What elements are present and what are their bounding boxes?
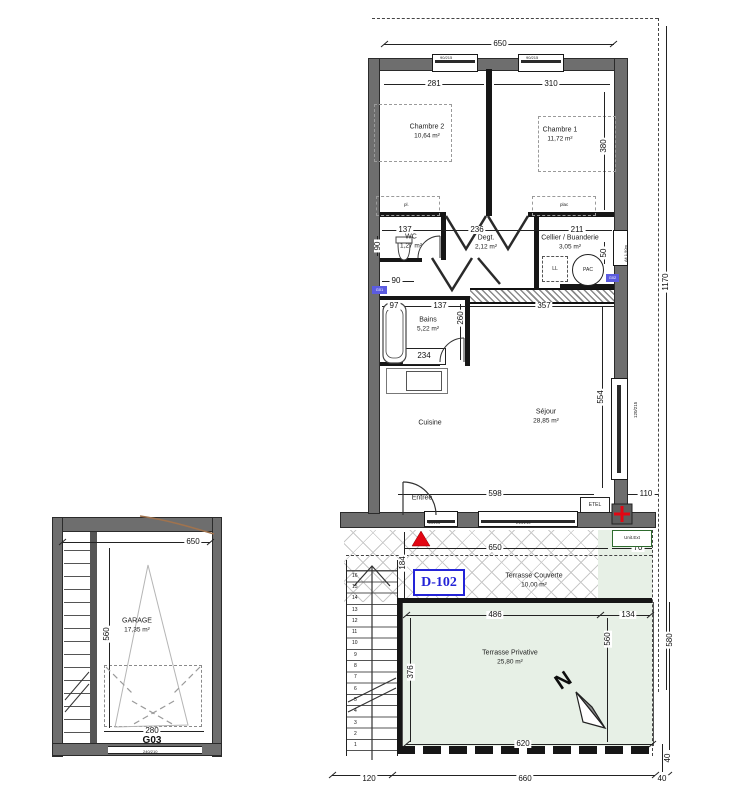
room-sejour: Séjour 28,85 m² xyxy=(533,409,559,426)
room-name: Cellier / Buanderie xyxy=(541,235,599,244)
room-wc: WC 1,27 m² xyxy=(400,234,422,251)
dim-label: 110 xyxy=(638,490,655,498)
dim-label: 357 xyxy=(535,302,552,310)
dim-label: 620 xyxy=(514,740,531,748)
dim-label: 120 xyxy=(360,775,377,783)
room-area: 11,72 m² xyxy=(543,135,578,143)
room-name: Entrée xyxy=(412,495,433,504)
dim-label: 660 xyxy=(516,775,533,783)
dim-label: 281 xyxy=(425,80,442,88)
etel-label: ETEL xyxy=(589,503,602,508)
wall-terrace-separator xyxy=(400,598,652,603)
window-size-label: 210/215 xyxy=(516,521,530,525)
dim-label: 97 xyxy=(388,302,401,310)
etel-box: ETEL xyxy=(580,497,610,513)
dim-label: 280 xyxy=(143,727,160,735)
boundary-top xyxy=(372,18,658,19)
washing-machine-box: LL xyxy=(542,256,568,282)
room-bains: Bains 5,22 m² xyxy=(417,317,439,334)
dim-label: 236 xyxy=(468,226,485,234)
room-name: WC xyxy=(400,234,422,243)
room-name: Terrasse Couverte xyxy=(505,573,562,582)
room-name: Terrasse Privative xyxy=(482,650,538,659)
door-tag-g01: G01 xyxy=(372,286,387,294)
window-size-label: 90/215 xyxy=(428,521,440,525)
dim-label: 40 xyxy=(656,775,669,783)
boundary-terrace-right xyxy=(652,530,653,756)
heat-pump-label: PAC xyxy=(583,268,593,273)
washing-machine-label: LL xyxy=(552,267,558,272)
floor-plan: 16 15 14 13 12 11 10 9 8 7 6 5 4 3 2 1 6… xyxy=(0,0,750,800)
dim-line xyxy=(404,548,608,549)
dim-line xyxy=(669,602,670,750)
dim-label: 310 xyxy=(542,80,559,88)
stair-step-number: 13 xyxy=(352,608,358,613)
stair-step-number: 10 xyxy=(352,641,358,646)
stair-step-number: 14 xyxy=(352,596,358,601)
stair-step-number: 2 xyxy=(354,732,357,737)
room-name: Chambre 1 xyxy=(543,127,578,136)
room-cuisine: Cuisine xyxy=(418,420,441,429)
room-area: 2,12 m² xyxy=(475,243,497,251)
room-name: Bains xyxy=(417,317,439,326)
wall-terrace-left xyxy=(397,598,402,750)
wall-wc-bottom xyxy=(380,258,422,262)
window-chambre1 xyxy=(518,54,564,72)
dim-label: 134 xyxy=(619,611,636,619)
stair-step-number: 11 xyxy=(352,630,357,635)
room-cellier: Cellier / Buanderie 3,05 m² xyxy=(541,235,599,252)
room-name: Degt. xyxy=(475,235,497,244)
wall-chambre-divider xyxy=(486,69,492,216)
room-name: Chambre 2 xyxy=(410,124,445,133)
exterior-unit-label: Unit.Ext xyxy=(624,536,640,541)
garage-wall-left xyxy=(52,517,63,757)
garage-parking-space xyxy=(104,665,202,727)
room-name: Cuisine xyxy=(418,420,441,429)
dim-label: 90 xyxy=(390,277,403,285)
room-area: 10,64 m² xyxy=(410,132,445,140)
window-chambre2 xyxy=(432,54,478,72)
wall-bains-top xyxy=(380,296,470,300)
unit-id-label: D-102 xyxy=(421,575,457,591)
unit-id-box: D-102 xyxy=(413,569,465,596)
door-chevron-degagement xyxy=(432,258,500,290)
dim-label: 376 xyxy=(407,663,415,680)
kitchen-sink xyxy=(406,371,442,391)
room-area: 10,00 m² xyxy=(505,581,562,589)
dim-label: 650 xyxy=(184,538,201,546)
wall-cellier-left xyxy=(534,214,539,290)
room-area: 28,85 m² xyxy=(533,417,559,425)
room-area: 1,27 m² xyxy=(400,242,422,250)
dim-label: 554 xyxy=(597,388,605,405)
dim-label: 234 xyxy=(415,352,432,360)
window-size-label: 90/215 xyxy=(526,56,538,60)
dim-label: 137 xyxy=(431,302,448,310)
dim-label: 560 xyxy=(604,630,612,647)
dim-label: 380 xyxy=(600,137,608,154)
dim-label: 40 xyxy=(664,752,672,765)
wall-wc-right xyxy=(441,214,446,260)
door-tag-label: G02 xyxy=(609,276,617,280)
placard-label: pl. xyxy=(404,203,409,208)
dim-label: 650 xyxy=(486,544,503,552)
dim-label: 90 xyxy=(374,240,382,253)
terrasse-privative-area xyxy=(402,602,654,750)
terrace-axis-dashed xyxy=(346,555,652,556)
dim-label: 184 xyxy=(399,554,407,571)
door-tag-g02: G02 xyxy=(606,274,619,282)
stair-step-number: 1 xyxy=(354,743,357,748)
room-area: 17,35 m² xyxy=(122,626,152,634)
stair-step-number: 3 xyxy=(354,721,357,726)
room-name: GARAGE xyxy=(122,618,152,627)
garage-staircase xyxy=(64,538,90,738)
room-area: 25,80 m² xyxy=(482,658,538,666)
dim-label: 211 xyxy=(569,226,586,234)
stair-step-number: 4 xyxy=(354,709,357,714)
dim-label: 1170 xyxy=(662,271,670,292)
placard-label: plac xyxy=(560,203,568,208)
garage-wall-right xyxy=(212,517,222,757)
room-degt: Degt. 2,12 m² xyxy=(475,235,497,252)
dim-line xyxy=(332,775,668,776)
window-altitude-label: Alt 1.90m xyxy=(624,245,628,262)
wall-bains-right xyxy=(465,298,470,366)
dim-label: 486 xyxy=(486,611,503,619)
room-garage: GARAGE 17,35 m² xyxy=(122,618,152,635)
stair-step-number: 15 xyxy=(352,585,358,590)
garage-stair-divider xyxy=(90,532,97,743)
boundary-right xyxy=(658,18,659,692)
stair-step-number: 6 xyxy=(354,687,357,692)
dim-label: 260 xyxy=(457,309,465,326)
room-terrasse-privative: Terrasse Privative 25,80 m² xyxy=(482,650,538,667)
stair-step-number: 16 xyxy=(352,574,358,579)
room-name: Séjour xyxy=(533,409,559,418)
room-chambre2: Chambre 2 10,64 m² xyxy=(410,124,445,141)
dim-label: 580 xyxy=(666,631,674,648)
stair-step-number: 9 xyxy=(354,653,357,658)
stair-step-number: 8 xyxy=(354,664,357,669)
dim-label: 650 xyxy=(491,40,508,48)
room-entree: Entrée xyxy=(412,495,433,504)
door-tag-label: G01 xyxy=(376,288,384,292)
garage-door-size-label: 240/210 xyxy=(143,750,157,754)
dim-label: 598 xyxy=(486,490,503,498)
stair-step-number: 12 xyxy=(352,619,358,624)
exterior-unit-box: Unit.Ext xyxy=(612,530,652,547)
window-size-label: 90/215 xyxy=(440,56,452,60)
window-sejour-east xyxy=(611,378,628,480)
room-terrasse-couverte: Terrasse Couverte 10,00 m² xyxy=(505,573,562,590)
garage-code-label: G03 xyxy=(141,736,164,746)
wall-top xyxy=(368,58,628,71)
dim-line xyxy=(666,26,667,690)
room-area: 3,05 m² xyxy=(541,243,599,251)
dim-label: 50 xyxy=(600,247,608,260)
window-size-label: 120/215 xyxy=(634,402,639,418)
stair-step-number: 5 xyxy=(354,698,357,703)
room-area: 5,22 m² xyxy=(417,325,439,333)
dim-label: 560 xyxy=(103,625,111,642)
garage-wall-top xyxy=(52,517,222,532)
stair-step-number: 7 xyxy=(354,675,357,680)
room-chambre1: Chambre 1 11,72 m² xyxy=(543,127,578,144)
